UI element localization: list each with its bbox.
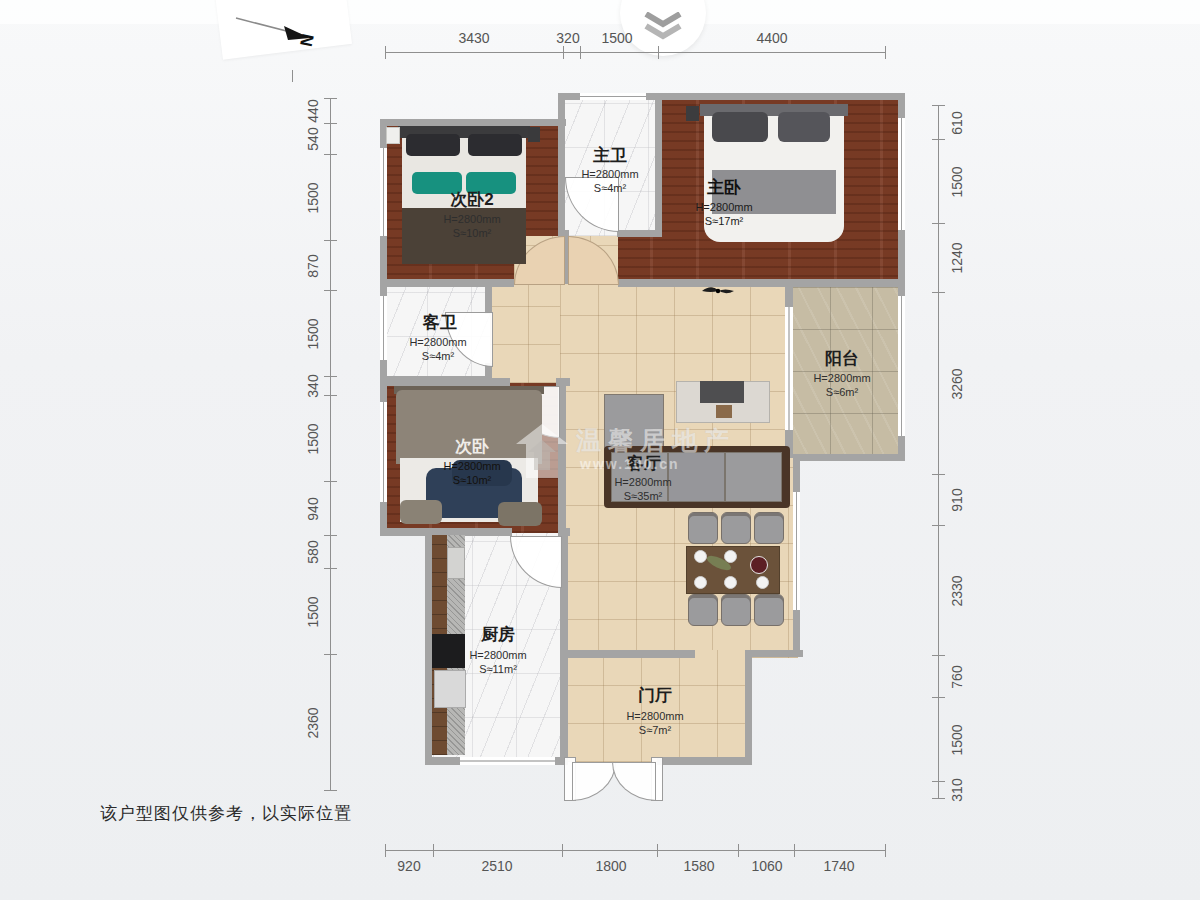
tick bbox=[324, 535, 337, 536]
wall bbox=[793, 454, 905, 461]
disclaimer-text: 该户型图仅供参考，以实际位置 bbox=[100, 802, 352, 825]
room-height: H=2800mm bbox=[443, 460, 500, 472]
window bbox=[380, 402, 387, 502]
room-label-bedroom3: 次卧 bbox=[455, 435, 489, 458]
window bbox=[898, 118, 905, 230]
wall bbox=[380, 378, 510, 386]
room-height: H=2800mm bbox=[695, 201, 752, 213]
dim-line-left bbox=[330, 98, 331, 790]
window bbox=[793, 492, 800, 610]
window bbox=[380, 148, 387, 236]
dim-label: 1500 bbox=[305, 163, 321, 233]
dim-label: 910 bbox=[949, 465, 965, 535]
wall bbox=[745, 657, 752, 765]
dim-label: 1500 bbox=[305, 404, 321, 474]
room-area: S≈4m² bbox=[594, 182, 626, 194]
window bbox=[580, 93, 646, 100]
tick bbox=[885, 46, 886, 59]
dim-label: 310 bbox=[949, 755, 965, 825]
room-height: H=2800mm bbox=[409, 336, 466, 348]
window bbox=[898, 296, 905, 436]
dining-chair bbox=[721, 594, 751, 626]
wall bbox=[380, 119, 566, 126]
wall bbox=[560, 650, 695, 658]
dim-label: 4400 bbox=[742, 30, 802, 46]
tick bbox=[324, 98, 337, 99]
nightstand bbox=[528, 127, 540, 142]
room-area: S≈7m² bbox=[639, 724, 671, 736]
chevron-double-down-icon bbox=[642, 12, 684, 42]
ceiling-fan-icon bbox=[700, 282, 736, 299]
dining-chair bbox=[688, 594, 718, 626]
tick bbox=[580, 46, 581, 59]
room-height: H=2800mm bbox=[581, 168, 638, 180]
room-height: H=2800mm bbox=[626, 710, 683, 722]
balcony-floor bbox=[788, 284, 898, 456]
nightstand bbox=[686, 106, 699, 121]
tick bbox=[324, 290, 337, 291]
room-area: S≈4m² bbox=[422, 350, 454, 362]
pillow bbox=[778, 112, 830, 142]
tick bbox=[324, 481, 337, 482]
tick bbox=[385, 46, 386, 59]
dim-label: 1060 bbox=[737, 858, 797, 874]
dim-label: 1800 bbox=[581, 858, 641, 874]
tick bbox=[932, 655, 945, 656]
plate bbox=[694, 550, 707, 563]
room-label-kitchen: 厨房 bbox=[481, 623, 515, 646]
room-height: H=2800mm bbox=[813, 372, 870, 384]
tick bbox=[385, 844, 386, 857]
dim-label: 1740 bbox=[809, 858, 869, 874]
room-label-bedroom2: 次卧2 bbox=[450, 188, 493, 211]
kitchen-sink bbox=[447, 547, 465, 579]
wall bbox=[425, 530, 432, 765]
north-arrow-icon bbox=[230, 2, 340, 62]
watermark-brand: 温馨居地产 bbox=[576, 424, 736, 457]
room-area: S≈35m² bbox=[624, 490, 662, 502]
entry-door bbox=[572, 762, 616, 801]
dim-line-top bbox=[385, 52, 886, 53]
dim-label: 1500 bbox=[949, 147, 965, 217]
room-area: S≈11m² bbox=[479, 663, 517, 675]
tick bbox=[324, 154, 337, 155]
tick bbox=[562, 844, 563, 857]
stove bbox=[432, 634, 465, 668]
wall bbox=[380, 279, 514, 287]
dim-label: 1500 bbox=[592, 30, 642, 46]
decor bbox=[716, 405, 732, 418]
dim-label: 920 bbox=[384, 858, 434, 874]
dim-label: 320 bbox=[548, 30, 588, 46]
dim-label: 760 bbox=[949, 642, 965, 712]
tick bbox=[324, 654, 337, 655]
dining-chair bbox=[754, 512, 784, 544]
dim-label: 2510 bbox=[467, 858, 527, 874]
collapse-button[interactable] bbox=[620, 0, 706, 56]
top-bar bbox=[0, 0, 1200, 24]
tick bbox=[932, 223, 945, 224]
tick bbox=[324, 568, 337, 569]
wall bbox=[655, 93, 662, 237]
wall bbox=[657, 757, 752, 765]
appliance bbox=[434, 670, 466, 708]
window bbox=[460, 757, 555, 765]
dim-line-right bbox=[938, 105, 939, 798]
room-label-guest-bath: 客卫 bbox=[423, 311, 457, 334]
room-label-master-bath: 主卫 bbox=[593, 144, 627, 167]
room-label-balcony: 阳台 bbox=[825, 347, 859, 370]
dim-label: 2330 bbox=[949, 556, 965, 626]
tick bbox=[932, 105, 945, 106]
room-label-master-bedroom: 主卧 bbox=[707, 176, 741, 199]
wall bbox=[618, 279, 905, 287]
tick bbox=[563, 46, 564, 59]
dining-chair bbox=[688, 512, 718, 544]
dim-label: 3430 bbox=[444, 30, 504, 46]
dim-label: 1580 bbox=[669, 858, 729, 874]
pillow bbox=[712, 112, 768, 142]
floorplan-page: N bbox=[0, 0, 1200, 900]
hallway-floor bbox=[490, 284, 568, 383]
tick bbox=[932, 474, 945, 475]
plate bbox=[756, 576, 769, 589]
tv bbox=[700, 381, 744, 403]
tick bbox=[657, 844, 658, 857]
pillow bbox=[406, 134, 460, 156]
tick bbox=[658, 46, 659, 59]
tick bbox=[324, 395, 337, 396]
sliding-door bbox=[785, 307, 793, 430]
room-area: S≈10m² bbox=[453, 474, 491, 486]
tick bbox=[324, 790, 337, 791]
tick bbox=[738, 844, 739, 857]
tick bbox=[932, 781, 945, 782]
dim-label: 870 bbox=[305, 231, 321, 301]
watermark-url: www.100.cn bbox=[580, 456, 680, 472]
room-height: H=2800mm bbox=[469, 649, 526, 661]
tick bbox=[932, 525, 945, 526]
dim-label: 1500 bbox=[305, 577, 321, 647]
centerpiece bbox=[750, 556, 768, 574]
dim-line-bottom bbox=[385, 850, 886, 851]
tick bbox=[932, 798, 945, 799]
tick bbox=[932, 139, 945, 140]
pillow bbox=[400, 500, 442, 524]
entry-door bbox=[612, 762, 656, 801]
watermark-logo-icon bbox=[514, 422, 570, 480]
room-height: H=2800mm bbox=[614, 476, 671, 488]
dim-label: 3260 bbox=[949, 349, 965, 419]
room-label-foyer: 门厅 bbox=[638, 684, 672, 707]
plate bbox=[724, 576, 737, 589]
wall bbox=[785, 281, 793, 307]
tick bbox=[324, 376, 337, 377]
wall bbox=[485, 281, 492, 314]
tick bbox=[932, 697, 945, 698]
pillow bbox=[498, 502, 542, 526]
room-area: S≈6m² bbox=[826, 386, 858, 398]
tick bbox=[324, 240, 337, 241]
sofa-cushion bbox=[725, 452, 782, 502]
dining-chair bbox=[754, 594, 784, 626]
plate bbox=[694, 576, 707, 589]
dim-label: 1240 bbox=[949, 223, 965, 293]
pillow bbox=[468, 134, 522, 156]
tick bbox=[932, 292, 945, 293]
window bbox=[380, 296, 387, 360]
tick bbox=[433, 844, 434, 857]
nightstand bbox=[386, 127, 400, 144]
tick bbox=[292, 70, 293, 82]
room-area: S≈10m² bbox=[453, 227, 491, 239]
tick bbox=[885, 844, 886, 857]
wall bbox=[558, 93, 565, 236]
dining-chair bbox=[721, 512, 751, 544]
dim-label: 2360 bbox=[305, 688, 321, 758]
room-area: S≈17m² bbox=[705, 215, 743, 227]
wall bbox=[617, 230, 662, 237]
tick bbox=[324, 123, 337, 124]
room-height: H=2800mm bbox=[443, 213, 500, 225]
tick bbox=[794, 844, 795, 857]
